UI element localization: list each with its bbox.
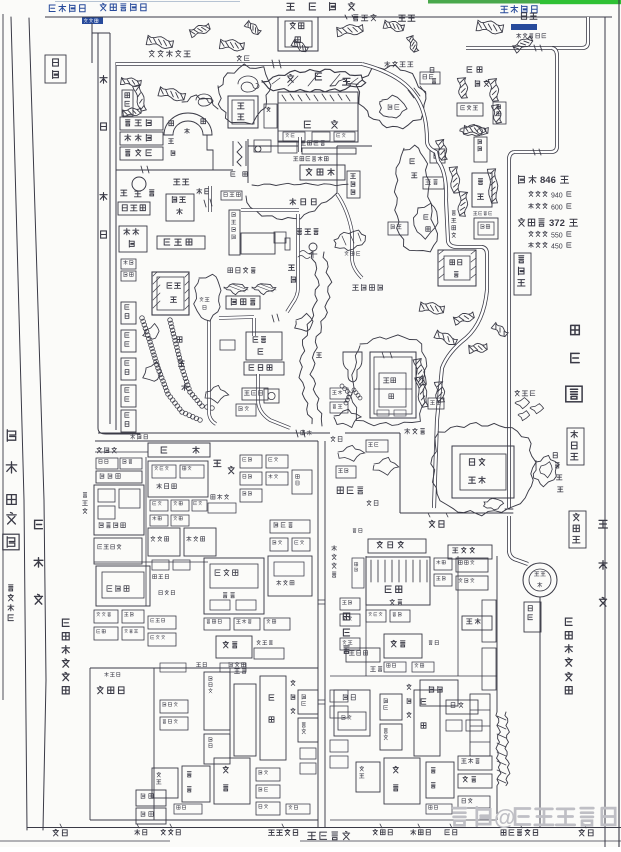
svg-text:550: 550 bbox=[551, 233, 563, 240]
svg-text:940: 940 bbox=[551, 193, 563, 200]
svg-text:846: 846 bbox=[540, 175, 556, 186]
svg-text:372: 372 bbox=[549, 218, 565, 229]
svg-text:@: @ bbox=[494, 805, 515, 830]
svg-text:600: 600 bbox=[551, 205, 563, 212]
svg-text:450: 450 bbox=[551, 244, 563, 251]
